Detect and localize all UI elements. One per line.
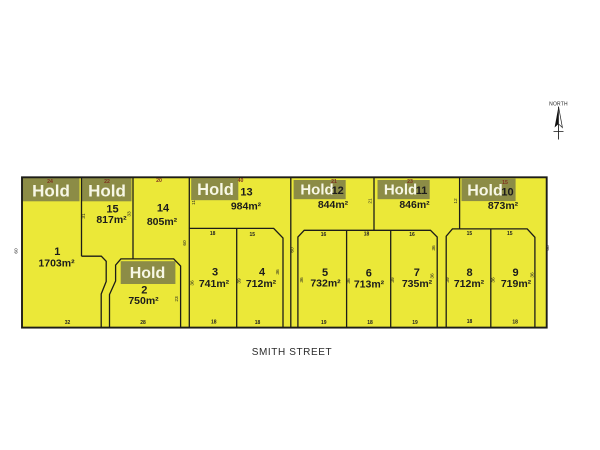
svg-text:719m²: 719m² bbox=[501, 278, 532, 290]
svg-text:36: 36 bbox=[275, 269, 281, 275]
svg-text:36: 36 bbox=[299, 277, 305, 283]
svg-text:60: 60 bbox=[13, 248, 19, 254]
svg-text:844m²: 844m² bbox=[318, 199, 349, 211]
svg-text:Hold: Hold bbox=[300, 182, 333, 199]
svg-text:712m²: 712m² bbox=[454, 278, 485, 290]
svg-text:11: 11 bbox=[416, 185, 428, 197]
svg-text:18: 18 bbox=[255, 320, 261, 326]
svg-text:846m²: 846m² bbox=[399, 199, 430, 211]
svg-text:36: 36 bbox=[491, 277, 497, 283]
svg-text:15: 15 bbox=[250, 232, 256, 238]
svg-text:732m²: 732m² bbox=[310, 278, 341, 290]
svg-text:805m²: 805m² bbox=[147, 216, 178, 228]
svg-text:32: 32 bbox=[65, 320, 71, 326]
svg-text:Hold: Hold bbox=[130, 265, 166, 282]
svg-text:750m²: 750m² bbox=[128, 295, 159, 307]
svg-text:60: 60 bbox=[290, 247, 296, 253]
svg-text:4: 4 bbox=[259, 267, 266, 279]
svg-text:Hold: Hold bbox=[467, 183, 503, 200]
svg-text:712m²: 712m² bbox=[246, 278, 277, 290]
svg-text:39: 39 bbox=[390, 277, 396, 283]
svg-text:60: 60 bbox=[182, 240, 188, 246]
svg-text:12: 12 bbox=[332, 185, 344, 197]
svg-text:12: 12 bbox=[453, 198, 459, 204]
svg-text:10: 10 bbox=[501, 187, 513, 199]
svg-text:SMITH STREET: SMITH STREET bbox=[252, 347, 333, 358]
svg-text:18: 18 bbox=[512, 320, 518, 326]
svg-text:18: 18 bbox=[211, 319, 217, 325]
svg-text:735m²: 735m² bbox=[402, 278, 433, 290]
svg-text:31: 31 bbox=[81, 213, 87, 219]
svg-text:3: 3 bbox=[212, 267, 218, 279]
svg-text:36: 36 bbox=[346, 278, 352, 284]
svg-text:39: 39 bbox=[445, 277, 451, 283]
svg-text:40: 40 bbox=[238, 178, 244, 184]
svg-text:23: 23 bbox=[407, 179, 413, 185]
svg-text:1: 1 bbox=[54, 246, 60, 258]
svg-text:24: 24 bbox=[47, 179, 53, 185]
svg-text:19: 19 bbox=[412, 320, 418, 326]
svg-text:Hold: Hold bbox=[197, 181, 234, 199]
svg-text:36: 36 bbox=[431, 245, 437, 251]
svg-text:15: 15 bbox=[502, 180, 508, 186]
svg-text:20: 20 bbox=[156, 178, 162, 184]
svg-text:1703m²: 1703m² bbox=[38, 258, 75, 270]
svg-text:28: 28 bbox=[140, 320, 146, 326]
svg-text:817m²: 817m² bbox=[96, 214, 127, 226]
svg-text:22: 22 bbox=[104, 179, 110, 185]
svg-text:13: 13 bbox=[240, 187, 252, 199]
svg-text:15: 15 bbox=[507, 231, 513, 237]
svg-text:19: 19 bbox=[321, 320, 327, 326]
svg-text:21: 21 bbox=[331, 179, 337, 185]
svg-text:23: 23 bbox=[174, 296, 180, 302]
svg-text:68: 68 bbox=[545, 245, 551, 251]
svg-text:18: 18 bbox=[467, 319, 473, 325]
svg-text:11: 11 bbox=[191, 200, 197, 205]
svg-text:21: 21 bbox=[368, 198, 374, 204]
svg-text:36: 36 bbox=[430, 273, 436, 279]
svg-text:15: 15 bbox=[467, 231, 473, 237]
svg-text:36: 36 bbox=[530, 272, 536, 278]
svg-text:18: 18 bbox=[210, 231, 216, 237]
svg-text:16: 16 bbox=[409, 232, 415, 238]
svg-text:39: 39 bbox=[237, 278, 243, 284]
svg-text:33: 33 bbox=[127, 211, 133, 217]
svg-text:741m²: 741m² bbox=[199, 278, 230, 290]
svg-text:873m²: 873m² bbox=[488, 200, 519, 212]
svg-text:18: 18 bbox=[364, 231, 370, 237]
svg-text:16: 16 bbox=[321, 232, 327, 238]
svg-text:14: 14 bbox=[157, 203, 170, 215]
svg-text:984m²: 984m² bbox=[231, 201, 262, 213]
svg-text:713m²: 713m² bbox=[354, 278, 385, 290]
svg-text:18: 18 bbox=[367, 320, 373, 326]
svg-text:36: 36 bbox=[190, 280, 196, 286]
